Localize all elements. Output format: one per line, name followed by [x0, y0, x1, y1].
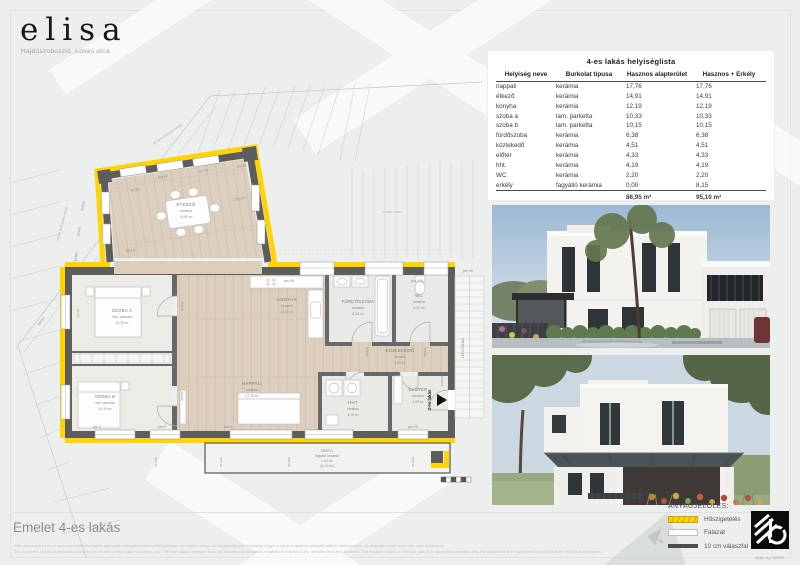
room-list-panel: 4-es lakás helyiséglista Helyiség neve B… — [487, 50, 775, 201]
legend-title: ANYAGJELÖLÉS: — [668, 503, 748, 510]
col-header: Hasznos alapterület — [622, 69, 692, 81]
table-row: hht.kerámia4,194,19 — [496, 161, 766, 171]
exterior-render-street — [492, 205, 770, 348]
table-row: WCkerámia2,202,20 — [496, 170, 766, 180]
room-list-table: Helyiség neve Burkolat típusa Hasznos al… — [496, 69, 766, 202]
brand-subtitle: Hajdúszoboszló, Lovas utca — [21, 48, 110, 55]
material-legend: ANYAGJELÖLÉS: Hőszigetelés Falazat 10 cm… — [668, 503, 748, 556]
table-row: nappalikerámia17,7617,76 — [496, 81, 766, 91]
brand-logo: elisa — [20, 12, 128, 48]
col-header: Burkolat típusa — [556, 69, 622, 81]
table-row: fürdőszobakerámia6,386,38 — [496, 131, 766, 141]
table-row: konyhakerámia12,1912,19 — [496, 101, 766, 111]
room-list-title: 4-es lakás helyiséglista — [488, 57, 774, 66]
table-header-row: Helyiség neve Burkolat típusa Hasznos al… — [496, 69, 766, 81]
studio-logo: arch by ZANG — [751, 511, 789, 560]
insulation-swatch — [668, 516, 698, 523]
legend-item-masonry: Falazat — [668, 529, 748, 537]
table-total-row: 86,95 m²95,10 m² — [496, 191, 766, 202]
table-row: előtérkerámia4,334,33 — [496, 151, 766, 161]
sheet-title: Emelet 4-es lakás — [13, 520, 120, 535]
legend-item-insulation: Hőszigetelés — [668, 515, 748, 523]
table-row: közlekedőkerámia4,514,51 — [496, 141, 766, 151]
zb-monogram-icon — [751, 511, 789, 549]
col-header: Hasznos + Erkély — [692, 69, 766, 81]
table-row: szoba blam. parketta10,1510,15 — [496, 121, 766, 131]
table-row: szoba alam. parketta10,3310,33 — [496, 111, 766, 121]
exterior-render-garden — [492, 355, 770, 505]
legend-item-partition: 10 cm válaszfal — [668, 542, 748, 550]
col-header: Helyiség neve — [496, 69, 556, 81]
table-row: étkezőkerámia14,9114,91 — [496, 91, 766, 101]
table-row: erkélyfagyálló kerámia0,008,15 — [496, 180, 766, 190]
partition-swatch — [668, 544, 698, 548]
studio-caption: arch by ZANG — [751, 556, 789, 560]
masonry-swatch — [668, 529, 698, 536]
